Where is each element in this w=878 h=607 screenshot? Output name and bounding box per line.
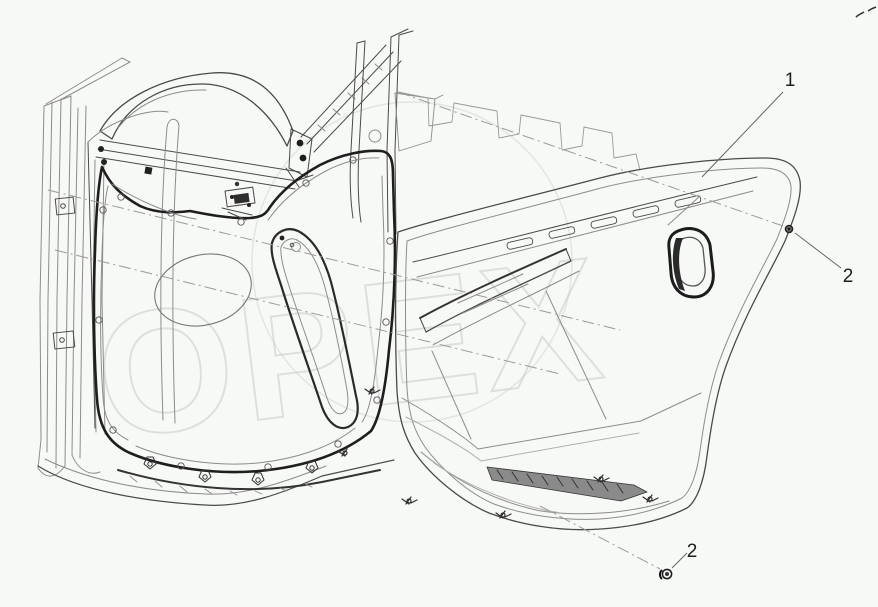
fastener-screw-lower bbox=[660, 569, 672, 579]
callout-1: 1 bbox=[702, 70, 795, 177]
a-pillar-rails bbox=[301, 29, 443, 234]
callout-2-upper: 2 bbox=[785, 225, 853, 287]
callout-1-label: 1 bbox=[785, 70, 796, 91]
callout-1-leader bbox=[702, 92, 783, 177]
belt-line-band bbox=[96, 140, 300, 189]
fastener-screw-upper bbox=[785, 225, 792, 232]
callout-2-lower-label: 2 bbox=[687, 541, 698, 562]
watermark-text: ОРЕХ bbox=[86, 221, 616, 477]
callout-2-upper-label: 2 bbox=[843, 266, 854, 287]
watermark: ОРЕХ bbox=[86, 102, 616, 476]
scuff-strip bbox=[487, 467, 647, 501]
corner-scribble bbox=[856, 7, 876, 17]
callout-2-upper-leader bbox=[795, 233, 841, 268]
callout-2-lower: 2 bbox=[660, 541, 697, 579]
parts-diagram-canvas: ОРЕХ bbox=[0, 0, 878, 607]
door-assembly-diagram: ОРЕХ bbox=[0, 0, 878, 607]
phantom-line-to-lower-fastener bbox=[540, 506, 660, 569]
callout-2-lower-leader bbox=[672, 553, 687, 568]
